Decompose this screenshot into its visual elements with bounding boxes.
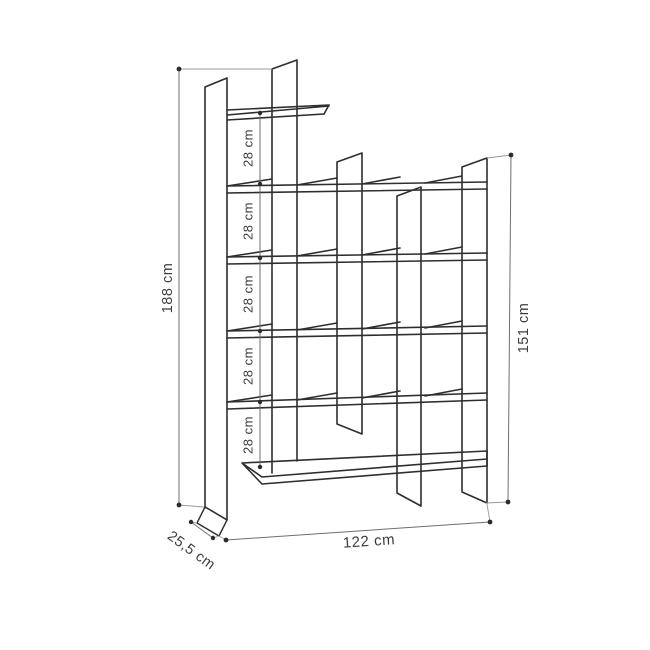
dim-label-total-width: 122 cm <box>342 531 395 552</box>
short-divider <box>397 187 421 506</box>
dim-label-right-height: 151 cm <box>516 303 532 354</box>
dim-right-height: 151 cm <box>486 153 532 505</box>
mid-divider <box>337 153 362 434</box>
shelf-level-4 <box>227 321 487 338</box>
bookshelf-dimension-diagram: 188 cm 28 cm 28 cm 28 cm 28 cm 28 cm 151… <box>0 0 650 650</box>
dim-label-shelf-gap-2: 28 cm <box>240 202 255 240</box>
dim-total-width: 122 cm <box>219 504 492 552</box>
dim-label-depth: 25,5 cm <box>164 528 218 573</box>
left-panel-foot <box>197 507 227 536</box>
dim-label-shelf-gap-3: 28 cm <box>240 275 255 313</box>
left-side-panel <box>197 78 227 536</box>
bottom-shelf <box>242 451 487 484</box>
shelf-level-3 <box>227 247 487 264</box>
diagram-canvas: 188 cm 28 cm 28 cm 28 cm 28 cm 28 cm 151… <box>0 0 650 650</box>
dim-label-shelf-gap-4: 28 cm <box>240 347 255 385</box>
shelf-top-left <box>227 105 329 120</box>
shelf-level-5 <box>227 389 487 409</box>
shelf-level-2 <box>227 176 487 193</box>
dim-label-total-height: 188 cm <box>160 263 176 314</box>
dim-shelf-gaps: 28 cm 28 cm 28 cm 28 cm 28 cm <box>240 111 262 469</box>
tall-divider <box>272 60 297 473</box>
dim-label-shelf-gap-5: 28 cm <box>240 416 255 454</box>
dim-label-shelf-gap-1: 28 cm <box>240 129 255 167</box>
